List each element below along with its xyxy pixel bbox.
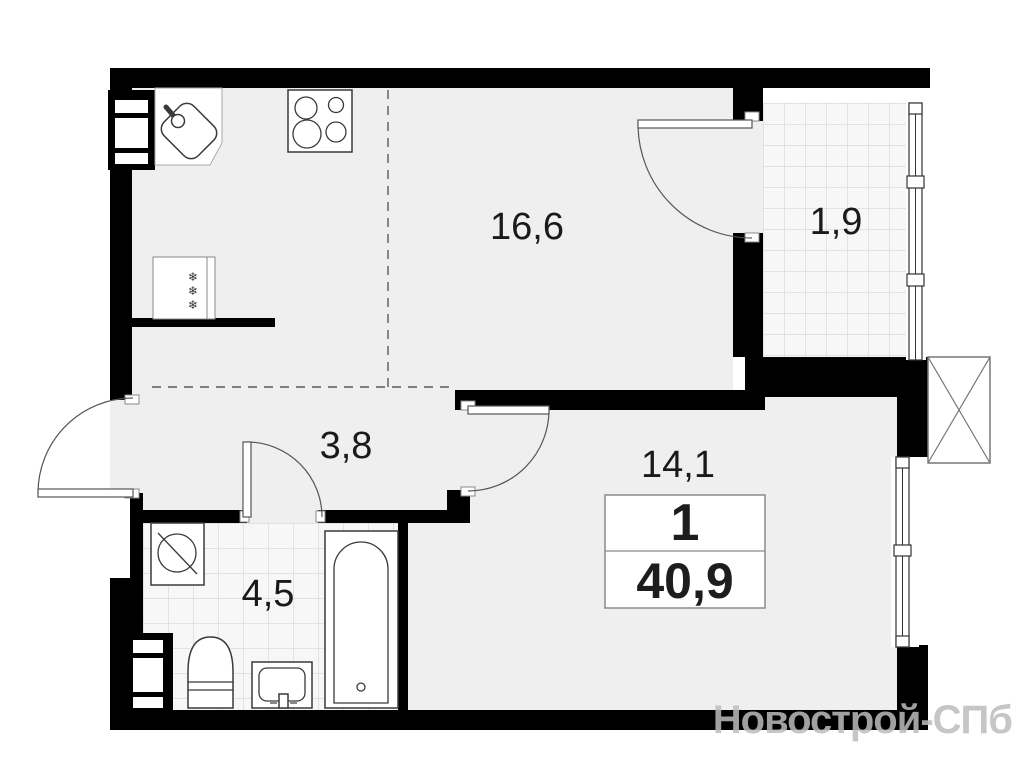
toilet-icon xyxy=(188,637,233,708)
wall-right-above-window xyxy=(897,390,928,457)
bathroom-doorway-floor xyxy=(247,508,318,523)
watermark: Новострой-СПб xyxy=(713,698,1013,742)
wall-top xyxy=(110,68,930,88)
stove-icon xyxy=(288,90,352,152)
fridge-icon: ❄ ❄ ❄ xyxy=(153,257,215,319)
badge-total-area: 40,9 xyxy=(636,553,733,609)
external-shaft-icon xyxy=(928,357,990,463)
apartment-badge: 1 40,9 xyxy=(605,494,765,609)
snowflake-icon: ❄ xyxy=(188,284,198,298)
bedroom-window-icon xyxy=(891,457,919,647)
washing-machine-icon xyxy=(151,523,204,585)
wall-bathroom-top-left xyxy=(130,510,247,523)
snowflake-icon: ❄ xyxy=(188,270,198,284)
kitchen-sink-icon xyxy=(155,88,222,165)
floor-plan: ❄ ❄ ❄ 16,6 1,9 xyxy=(0,0,1024,768)
wall-living-balcony-lower xyxy=(733,233,763,357)
bathtub-icon xyxy=(325,531,398,708)
room-label-bedroom: 14,1 xyxy=(641,444,715,486)
entrance-doorway-floor xyxy=(110,400,132,493)
badge-rooms-count: 1 xyxy=(671,494,700,552)
wall-left-below-door xyxy=(130,493,143,578)
vent-shaft-bathroom-icon xyxy=(125,633,173,710)
balcony-window-icon xyxy=(906,103,926,360)
snowflake-icon: ❄ xyxy=(188,298,198,312)
room-label-kitchen-living: 16,6 xyxy=(490,206,564,248)
wall-bathroom-right xyxy=(398,513,408,710)
wall-balcony-bottom xyxy=(745,357,928,397)
balcony-doorway-floor xyxy=(733,121,763,233)
room-label-balcony: 1,9 xyxy=(810,201,863,243)
bathroom-sink-icon xyxy=(252,662,312,708)
vent-shaft-kitchen-icon xyxy=(108,90,155,170)
floor-plan-canvas: ❄ ❄ ❄ 16,6 1,9 xyxy=(0,0,1024,768)
room-label-bathroom: 4,5 xyxy=(242,573,295,615)
room-label-hallway: 3,8 xyxy=(320,425,373,467)
